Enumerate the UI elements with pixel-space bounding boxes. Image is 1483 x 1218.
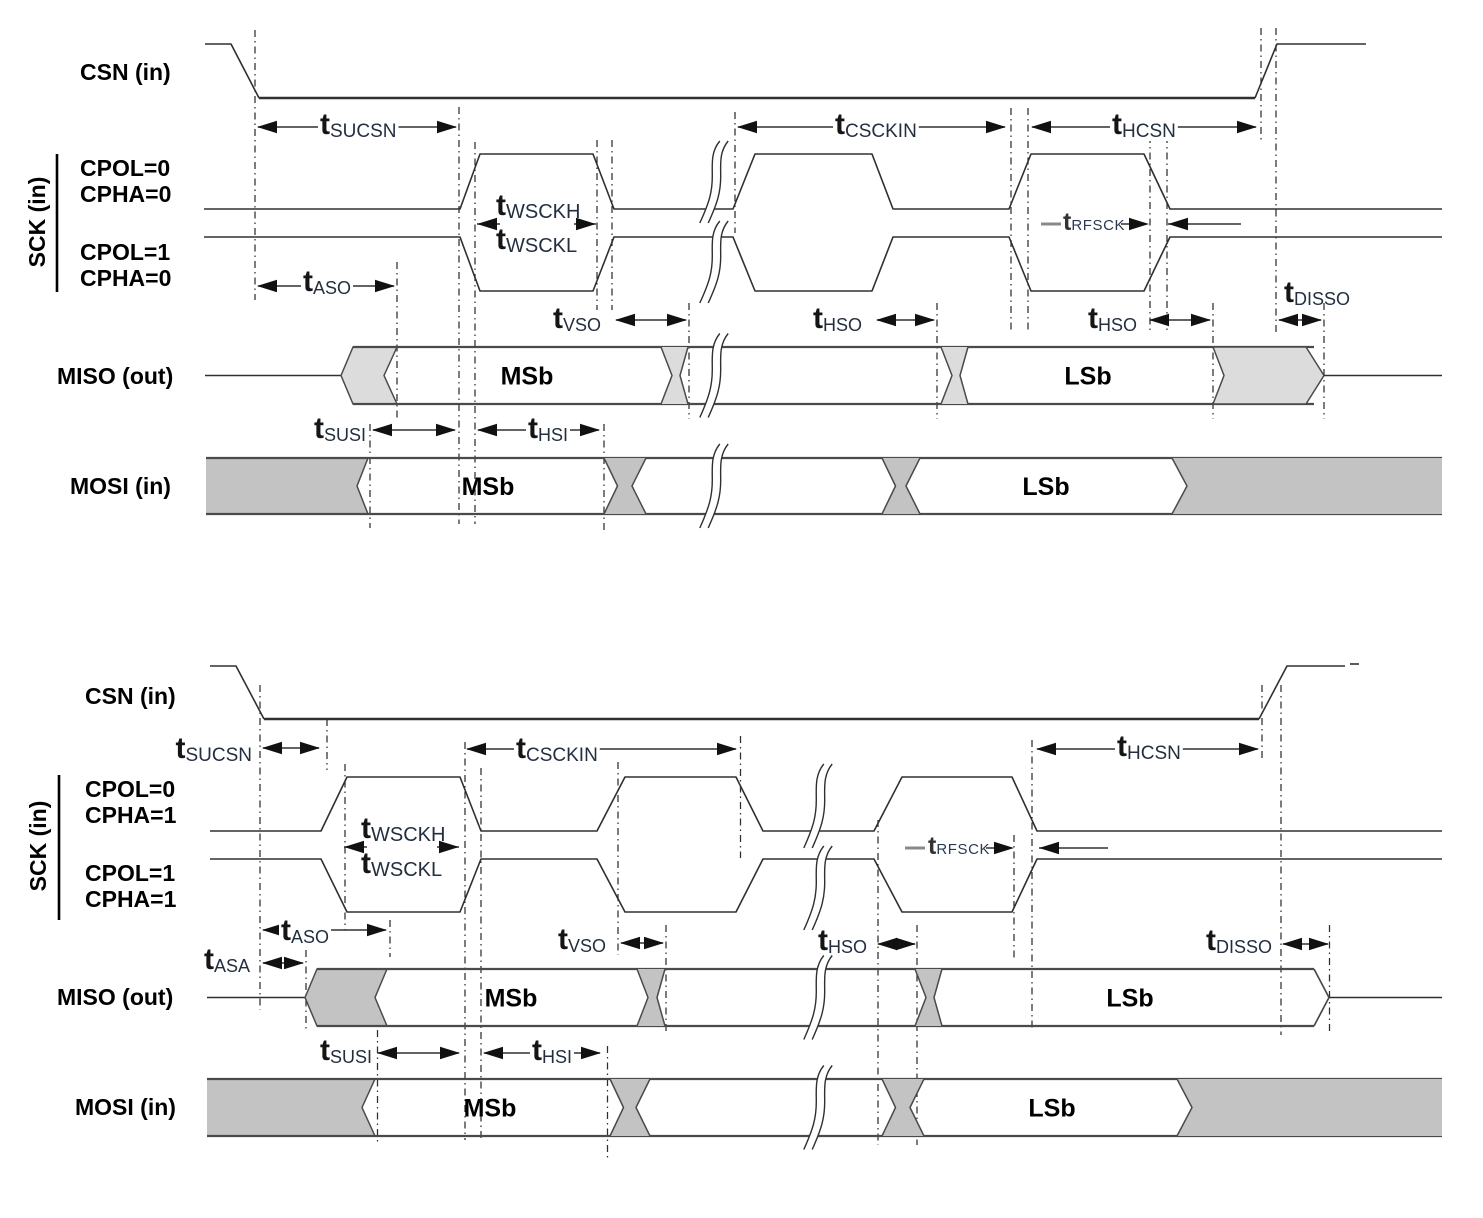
svg-text:CSN (in): CSN (in) xyxy=(85,683,176,709)
svg-text:CPOL=0: CPOL=0 xyxy=(80,155,170,181)
svg-text:MOSI (in): MOSI (in) xyxy=(75,1094,176,1120)
svg-text:CPHA=0: CPHA=0 xyxy=(80,265,171,291)
svg-text:CPHA=1: CPHA=1 xyxy=(85,802,177,828)
svg-text:LSb: LSb xyxy=(1028,1095,1075,1123)
svg-text:LSb: LSb xyxy=(1064,363,1111,391)
svg-text:CPHA=0: CPHA=0 xyxy=(80,181,171,207)
svg-text:CPHA=1: CPHA=1 xyxy=(85,886,177,912)
svg-text:SCK (in): SCK (in) xyxy=(25,801,51,892)
svg-text:MSb: MSb xyxy=(485,985,538,1013)
svg-text:SCK (in): SCK (in) xyxy=(24,177,50,268)
svg-text:CPOL=1: CPOL=1 xyxy=(85,860,175,886)
svg-text:CPOL=1: CPOL=1 xyxy=(80,239,170,265)
svg-text:LSb: LSb xyxy=(1106,985,1153,1013)
svg-text:LSb: LSb xyxy=(1022,473,1069,501)
svg-text:CPOL=0: CPOL=0 xyxy=(85,776,175,802)
svg-text:CSN (in): CSN (in) xyxy=(80,59,171,85)
svg-text:MOSI (in): MOSI (in) xyxy=(70,473,171,499)
svg-text:MSb: MSb xyxy=(464,1095,517,1123)
svg-text:MSb: MSb xyxy=(462,473,515,501)
svg-text:MSb: MSb xyxy=(501,363,554,391)
svg-text:MISO (out): MISO (out) xyxy=(57,363,173,389)
svg-text:MISO (out): MISO (out) xyxy=(57,984,173,1010)
